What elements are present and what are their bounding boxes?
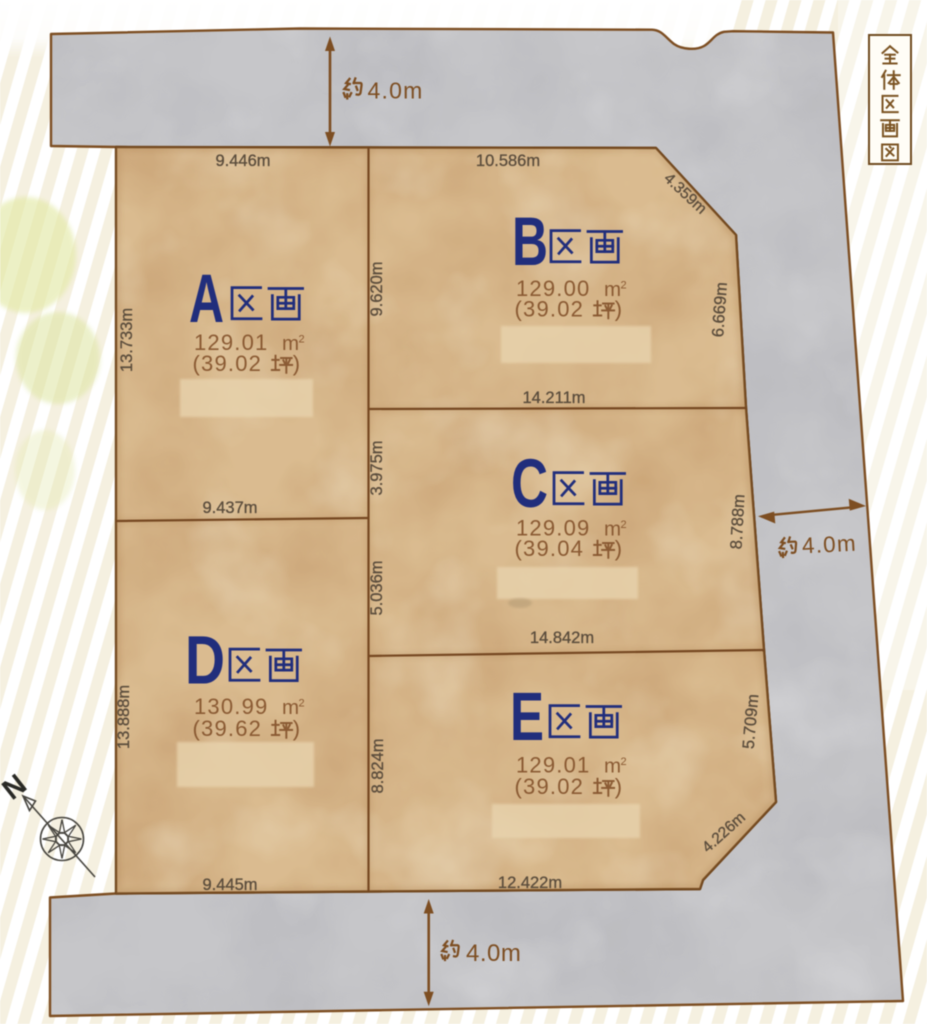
svg-text:): ) bbox=[615, 774, 624, 799]
svg-text:8.788m: 8.788m bbox=[728, 494, 749, 550]
svg-text:(39.04: (39.04 bbox=[515, 536, 585, 561]
svg-text:2: 2 bbox=[621, 519, 627, 531]
svg-text:12.422m: 12.422m bbox=[498, 874, 562, 892]
svg-text:9.446m: 9.446m bbox=[215, 152, 270, 170]
svg-text:6.669m: 6.669m bbox=[709, 282, 731, 338]
svg-text:2: 2 bbox=[621, 280, 627, 292]
svg-text:): ) bbox=[293, 351, 302, 376]
svg-text:4.0m: 4.0m bbox=[368, 78, 424, 104]
svg-text:10.586m: 10.586m bbox=[476, 152, 540, 170]
svg-text:13.733m: 13.733m bbox=[118, 308, 136, 372]
svg-text:2: 2 bbox=[299, 334, 305, 346]
svg-text:5.036m: 5.036m bbox=[368, 560, 386, 615]
svg-text:4.0m: 4.0m bbox=[801, 531, 857, 559]
svg-text:9.437m: 9.437m bbox=[202, 499, 257, 517]
svg-text:(39.02: (39.02 bbox=[193, 351, 263, 376]
svg-text:13.888m: 13.888m bbox=[115, 685, 133, 749]
svg-text:14.211m: 14.211m bbox=[523, 389, 586, 407]
svg-text:2: 2 bbox=[621, 756, 627, 768]
svg-text:(39.62: (39.62 bbox=[193, 716, 263, 741]
svg-text:): ) bbox=[615, 297, 624, 322]
svg-text:4.0m: 4.0m bbox=[466, 940, 521, 967]
svg-text:): ) bbox=[615, 536, 624, 561]
svg-text:2: 2 bbox=[299, 698, 305, 710]
svg-text:C: C bbox=[511, 445, 548, 522]
svg-text:): ) bbox=[293, 716, 302, 741]
svg-text:(39.02: (39.02 bbox=[515, 297, 585, 322]
svg-text:A: A bbox=[189, 260, 224, 337]
svg-text:(39.02: (39.02 bbox=[515, 774, 585, 799]
svg-text:B: B bbox=[512, 203, 548, 280]
svg-text:9.620m: 9.620m bbox=[368, 261, 386, 316]
svg-text:14.842m: 14.842m bbox=[530, 629, 594, 647]
svg-text:3.975m: 3.975m bbox=[368, 440, 386, 495]
svg-text:D: D bbox=[185, 622, 225, 699]
svg-text:8.824m: 8.824m bbox=[369, 738, 387, 793]
svg-text:9.445m: 9.445m bbox=[202, 876, 257, 894]
svg-text:E: E bbox=[510, 678, 544, 755]
